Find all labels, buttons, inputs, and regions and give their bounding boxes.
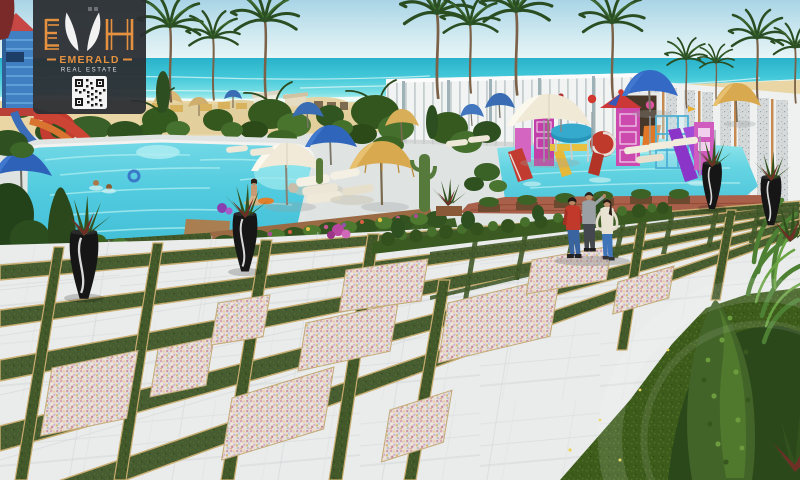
svg-text:EMERALD: EMERALD [59, 54, 119, 66]
svg-text:REAL ESTATE: REAL ESTATE [61, 68, 118, 74]
